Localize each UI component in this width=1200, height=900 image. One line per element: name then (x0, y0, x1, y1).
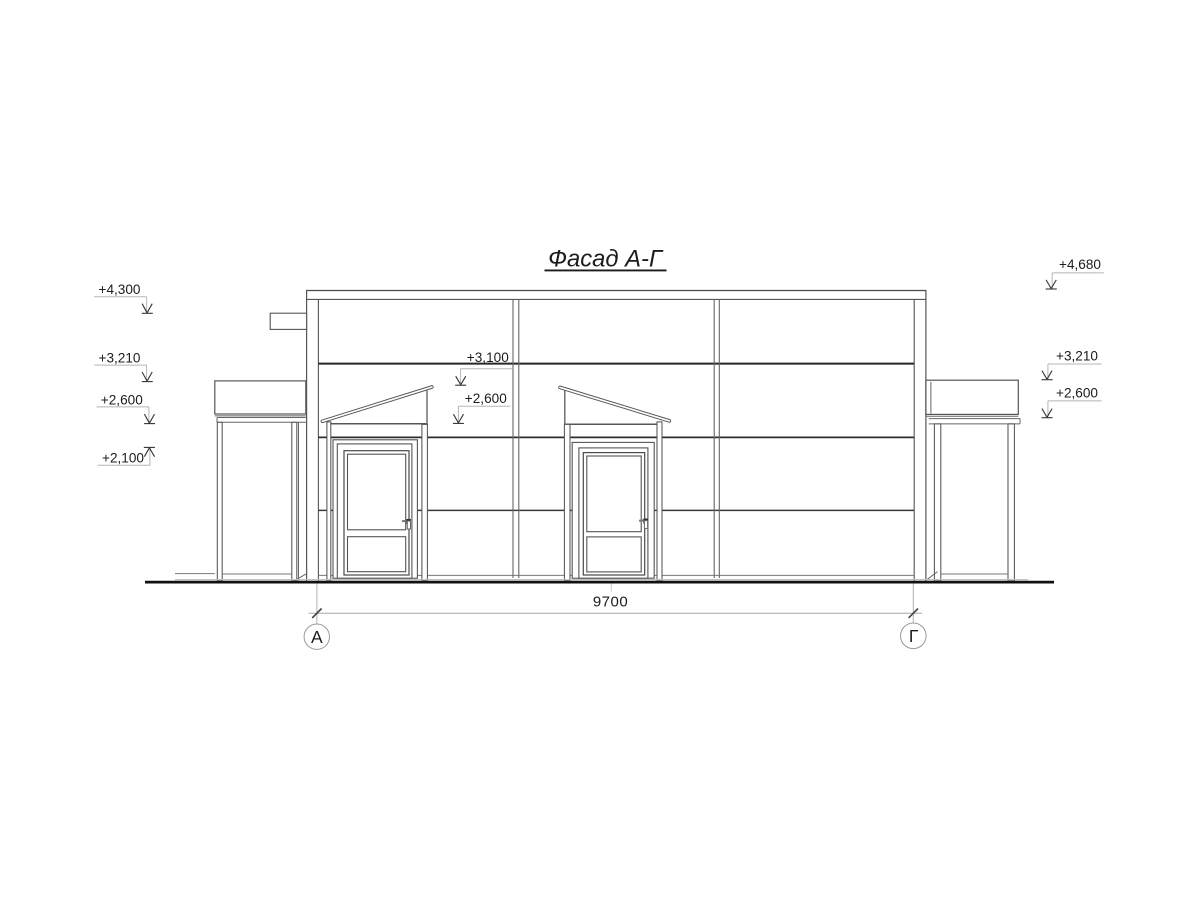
svg-text:Г: Г (909, 626, 919, 646)
svg-text:+4,680: +4,680 (1059, 257, 1101, 272)
svg-text:+3,210: +3,210 (99, 351, 141, 366)
svg-text:А: А (311, 627, 323, 647)
svg-text:+2,600: +2,600 (101, 393, 143, 408)
svg-text:9700: 9700 (593, 593, 628, 610)
svg-text:+2,100: +2,100 (102, 451, 144, 466)
svg-text:+4,300: +4,300 (99, 282, 141, 297)
svg-text:+2,600: +2,600 (465, 391, 507, 406)
svg-text:+3,100: +3,100 (467, 350, 509, 365)
svg-text:+3,210: +3,210 (1056, 349, 1098, 364)
svg-text:Фасад А-Г: Фасад А-Г (548, 246, 664, 273)
svg-text:+2,600: +2,600 (1056, 386, 1098, 401)
